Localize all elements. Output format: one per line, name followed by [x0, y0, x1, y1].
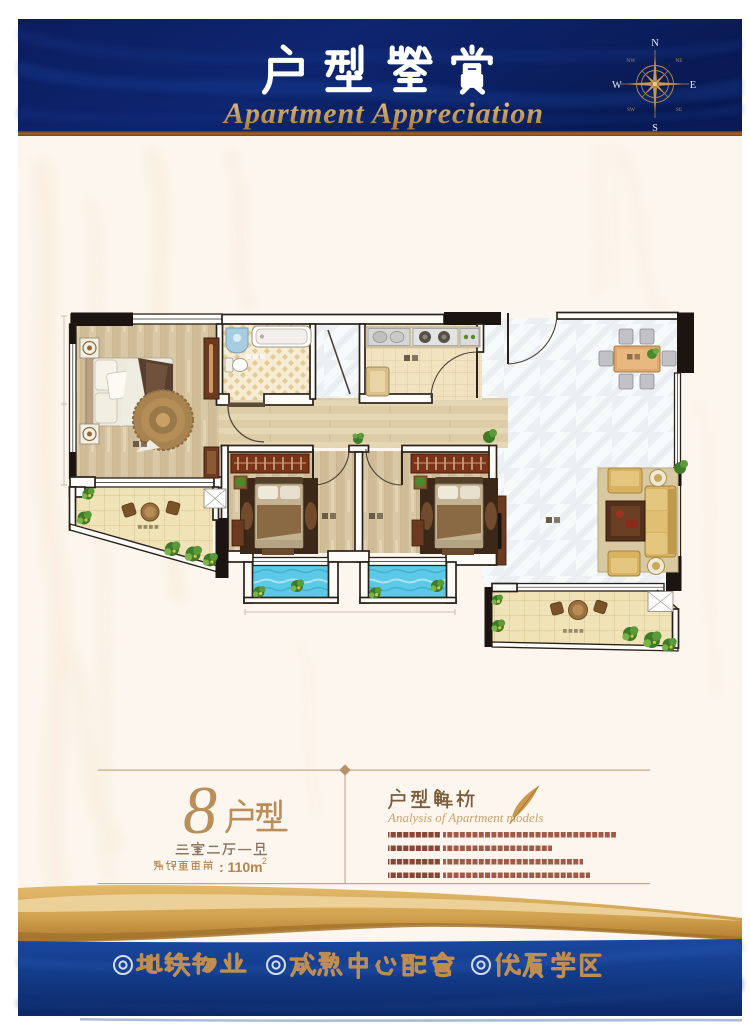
svg-text:2: 2 — [262, 856, 267, 866]
svg-text:W: W — [612, 80, 622, 91]
svg-text:: 110m: : 110m — [219, 859, 263, 875]
svg-text:SW: SW — [627, 107, 636, 113]
svg-text:N: N — [651, 38, 659, 49]
svg-text:Apartment Appreciation: Apartment Appreciation — [222, 97, 544, 130]
svg-text:NW: NW — [626, 58, 636, 64]
svg-text:SE: SE — [676, 107, 683, 113]
svg-text:NE: NE — [675, 58, 683, 64]
svg-text:8: 8 — [183, 772, 217, 848]
svg-text:E: E — [690, 80, 696, 91]
